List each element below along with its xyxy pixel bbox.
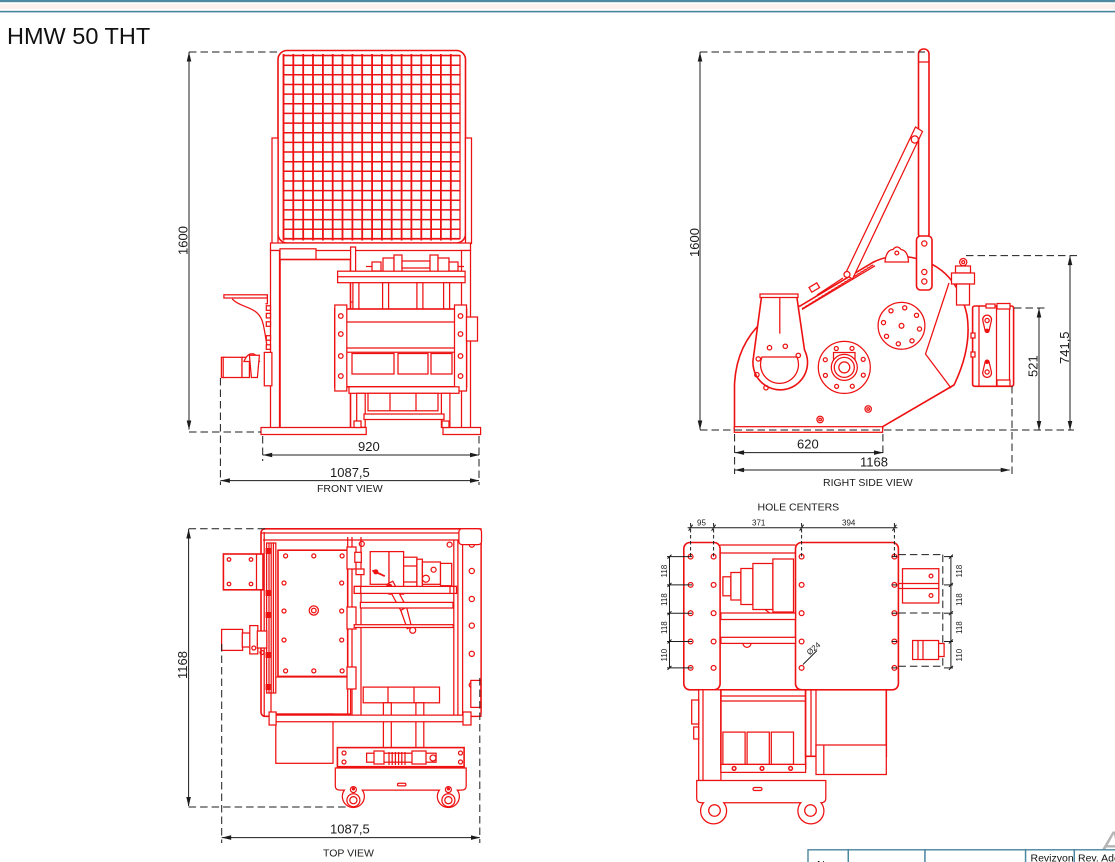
svg-text:118: 118 <box>955 621 964 634</box>
svg-text:110: 110 <box>660 648 669 661</box>
svg-text:110: 110 <box>955 648 964 661</box>
svg-text:1600: 1600 <box>176 226 191 255</box>
svg-text:394: 394 <box>842 519 856 528</box>
svg-text:HMW 50 THT: HMW 50 THT <box>7 23 150 49</box>
svg-text:FRONT VIEW: FRONT VIEW <box>317 483 383 495</box>
svg-text:1168: 1168 <box>175 651 190 679</box>
svg-text:1168: 1168 <box>860 455 888 470</box>
svg-text:118: 118 <box>660 564 669 577</box>
svg-text:118: 118 <box>955 564 964 577</box>
svg-text:371: 371 <box>752 519 766 528</box>
svg-text:1087,5: 1087,5 <box>330 822 370 837</box>
svg-text:1087,5: 1087,5 <box>330 465 370 480</box>
svg-text:HOLE CENTERS: HOLE CENTERS <box>758 502 840 514</box>
svg-text:920: 920 <box>358 439 380 454</box>
svg-text:118: 118 <box>660 593 669 606</box>
svg-text:118: 118 <box>955 593 964 606</box>
svg-text:118: 118 <box>660 621 669 634</box>
svg-text:521: 521 <box>1026 355 1041 377</box>
svg-text:1600: 1600 <box>687 228 702 257</box>
svg-text:TOP VIEW: TOP VIEW <box>323 848 374 860</box>
svg-text:741,5: 741,5 <box>1057 331 1072 364</box>
svg-text:Rev. Ade: Rev. Ade <box>1078 853 1115 862</box>
svg-text:620: 620 <box>797 437 819 452</box>
svg-text:95: 95 <box>697 519 706 528</box>
svg-text:RIGHT SIDE VIEW: RIGHT SIDE VIEW <box>823 477 913 489</box>
svg-text:Revizyon: Revizyon <box>1031 853 1074 862</box>
